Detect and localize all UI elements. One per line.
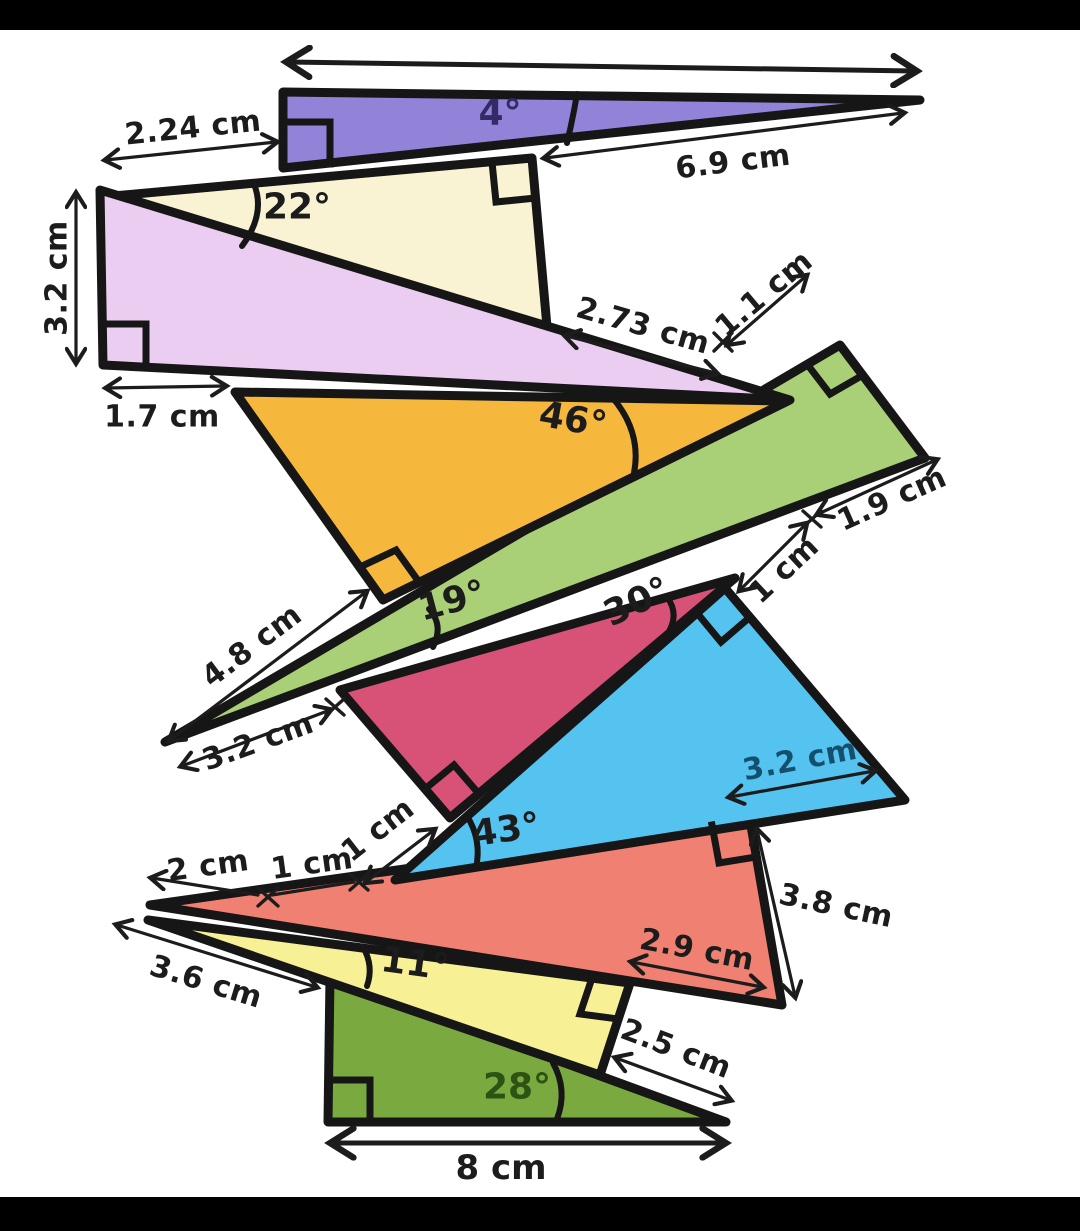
- dimension-1cm-green: [740, 524, 806, 590]
- dimension-top-span: [289, 62, 914, 71]
- purple-triangle: [283, 92, 920, 168]
- bottom-letterbox-bar: [0, 1197, 1080, 1231]
- tick-mark-3-2cm-green: [326, 699, 344, 715]
- dimension-2-24cm: [106, 142, 276, 160]
- triangle-diagram: [0, 0, 1080, 1231]
- dimension-1-1cm: [728, 276, 806, 344]
- tick-mark-1cm-1-9cm: [803, 511, 821, 527]
- dimension-1-7cm: [107, 386, 225, 388]
- dimension-2cm: [152, 878, 258, 895]
- worksheet-page: 4° 2.24 cm 6.9 cm 22° 2.73 cm 1.1 cm 3.2…: [0, 0, 1080, 1231]
- top-letterbox-bar: [0, 0, 1080, 30]
